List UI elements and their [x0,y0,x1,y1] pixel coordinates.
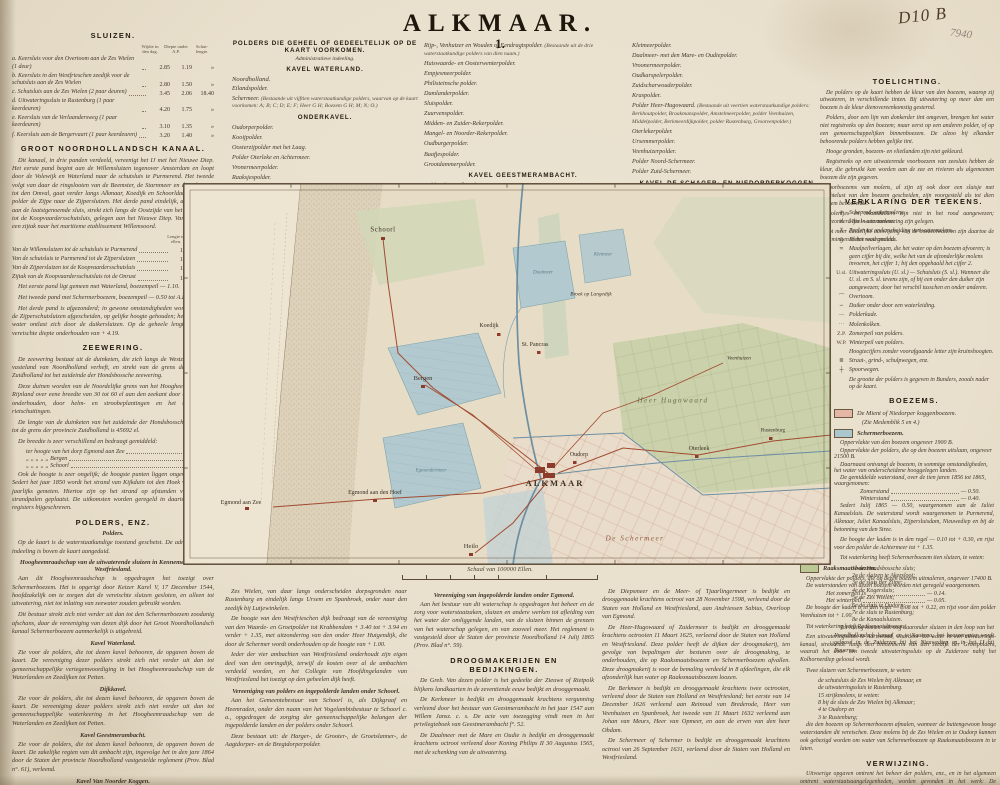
polder-list-item: Midden- en Zuider-Rekerpolder. [424,120,622,128]
raaks-peil-rows: Het zomerpeil is — 0.14. Het winterpeil … [800,591,996,604]
map-label-alkmaar: ALKMAAR [526,479,585,488]
legend-symbol-row: ≣ Straat-, grind-, schulpwegen, enz. [834,358,994,365]
legend-symbol-row: ⊼ Peelen tot onderscheiding van watermol… [834,228,994,235]
map-label-heerhugowaard: Heer Hugowaard [637,397,708,404]
legend-symbol-icon: — [834,312,849,319]
raaks-statistics: Oppervlakte der polders, die op dezen bo… [800,576,996,590]
raaksmaatsboezem-block: Raaksmaatsboezem. Oppervlakte der polder… [800,564,996,785]
map-sheet: ALKMAAR. 1. D10 B 7940 SLUIZEN. Wijdte i… [0,0,1000,785]
polder-list-item: Baafjespolder. [424,151,622,159]
legend-symbol-label: De grootte der polders is gegeven in Bun… [849,377,994,392]
koedijk-marker [497,333,501,336]
map-label-kleimeer: Kleimeer [594,253,612,258]
legend-symbol-label: Maalpeilverlagen, die het water op den b… [849,246,994,268]
bottom-paragraph: Aan het Gemeentebestuur van Schoorl is, … [225,697,407,730]
map-label-schermeer: De Schermeer [606,535,665,542]
sluizen-heading: SLUIZEN. [12,31,214,40]
legend-symbol-row: Hoogtecijfers zonder voorafgaande letter… [834,349,994,356]
map-label-daalmeer: Daalmeer [533,271,553,276]
map-label-schoorl: Schoorl [370,228,395,235]
raaks-list-line: 15 strijkmolens, te weten: [818,693,996,699]
legend-symbol-label: Zomerpeil van polders. [849,331,904,338]
boezems-heading: BOEZEMS. [834,396,994,405]
raaks-list-line: 8 bij de sluis de Zes Wielen bij Alkmaar… [818,700,996,706]
raaks-paragraph: Een uitwateringssluis te Aartswoud, waar… [800,634,996,665]
legend-symbol-label: Polderkade. [849,312,878,319]
legend-symbol-icon: ✕ [834,219,849,226]
sluis-row: f. Keersluis aan de Bergervaart (1 paar … [12,132,214,140]
legend-symbol-icon: W.P. [834,340,849,347]
map-label-egmondermeer: Egmondermeer [416,469,447,474]
raaks-paragraphs: De hoogte der kaden is in den regel — 0.… [800,605,996,675]
polder-list-item: Daalmeer- met den Mare- en Oudiepolder. [632,52,824,60]
bottom-paragraph: De hoogte van den Westfrieschen dijk bed… [225,615,407,648]
raaks-closing-paragraph: die den boezem op Schermerboezem afmalen… [800,722,996,753]
scale-bar-block: Schaal van 100000 Ellen. [388,566,612,580]
legend-symbol-icon: ✳ [834,210,849,217]
bottom-paragraph: Deze bestaan uit: de Harger-, de Grooter… [225,733,407,750]
map-label-egmond-zee: Egmond aan Zee [221,500,262,506]
boezem-entry-schermer: Schermerboezem. [834,429,994,438]
map-label-oterleek: Oterleek [689,446,710,452]
map-label-stpancras: St. Pancras [522,342,549,348]
bottom-paragraph: De Kerkmeer is bedijkt en drooggemaakt k… [414,696,594,729]
polder-list-item: Grootdammerpolder. [424,161,622,169]
boezem-label: Schermerboezem. [857,430,904,437]
legend-symbol-label: Peelen tot onderscheiding van watermolen… [849,228,954,235]
polders-section-subheading: Kavel Geestmerambacht. [12,732,214,739]
scale-caption: Schaal van 100000 Ellen. [388,566,612,573]
polder-list-item: Vroonermeerpolder. [632,62,824,70]
peil-row: Zomerstand — 0.50. [860,489,980,495]
zuid-alkmaar-polder-region [483,488,553,565]
teekens-heading: VERKLARING DER TEEKENS. [834,197,994,206]
polder-list: Rijp-, Venhuizer en Wouden of Eendragtsp… [424,42,622,168]
legend-symbol-icon: ≣ [834,358,849,365]
bottom-paragraph: De Heer-Hugowaard of Zuidermeer is bedij… [602,624,790,683]
polder-list: Kleimeerpolder. Daalmeer- met den Mare- … [632,42,824,176]
boezem-color-swatch-blue [834,429,853,438]
polder-list-item: Polder Heer-Hugowaard. (Bestaande uit ve… [632,102,824,126]
sluis-row: a. Keersluis voor den Overtoom aan de Ze… [12,56,214,71]
peil-row: Het zomerpeil is — 0.14. [826,591,946,597]
legend-symbol-row: ⌒ Overtoom. [834,294,994,301]
polder-list-item: Veenhuizerpolder. [632,148,824,156]
sluis-row: c. Schutsluis aan de Zes Wielen (2 paar … [12,89,214,97]
bottom-paragraph: Zes Wielen, van daar langs onderscheiden… [225,588,407,613]
raaks-paragraph: De hoogte der kaden is in den regel — 0.… [800,605,996,621]
raaks-stat-line: De waterstanden van dezen boezem worden … [800,583,996,589]
polder-list-item: Oudburgerpolder. [424,140,622,148]
legend-symbol-label: Overtoom. [849,294,874,301]
polders-section: Kavel Waterland. Zie voor de polders, di… [12,640,214,682]
legend-symbol-row: ⊙ Kleine watermolens. [834,237,994,244]
polders-section-paragraph: Zie voor de polders, die tot dezen kavel… [12,741,214,774]
boezem-entry-mient: De Mient of Niedorper koggenboezem. [834,409,994,418]
bottom-paragraph: De Daalmeer met de Mare en Oudie is bedi… [414,732,594,757]
raaks-lines: de schutsluis de Zes Wielen bij Alkmaar,… [800,678,996,721]
boezem-label: De Mient of Niedorper koggenboezem. [857,410,956,417]
peil-row: Het winterpeil — 0.05. [826,598,946,604]
legend-symbol-label: Molenkolken. [849,322,881,329]
boezem-paragraph: De hoogte der kaden is in den regel — 0.… [834,537,994,553]
polder-list-item: Kleimeerpolder. [632,42,824,50]
boezem-statistics: Oppervlakte van den boezem ongeveer 1900… [834,440,994,487]
legend-symbol-label: Hoogtecijfers zonder voorafgaande letter… [849,349,993,356]
legend-symbol-icon: ┼ [834,367,849,374]
legend-symbol-row: ┼ Spoorwegen. [834,367,994,374]
polder-list-item: Sluispolder. [424,100,622,108]
polder-list-item: Oterlekerpolder. [632,128,824,136]
toelichting-paragraph: De polders op de kaart hebben de kleur v… [820,90,994,114]
province-label: Noordholland. [232,76,418,83]
oterleek-marker [695,455,699,458]
polder-list-item: Polder Zuid-Schermeer. [632,168,824,176]
verwijzing-paragraph: Uitvoerige opgaven omtrent het beheer de… [800,771,996,785]
kanaal-heading: GROOT NOORDHOLLANDSCH KANAAL. [12,144,214,153]
polder-list-item: Schermeer. (Bestaande uit vijftien water… [232,95,418,111]
bottom-col3-paragraphs: De Diepsmeer en de Meer- of Tjaarlingerm… [602,588,790,762]
legend-symbol-row: Z.P. Zomerpeil van polders. [834,331,994,338]
legend-symbol-row: ✕ Vijzel-watermolens. [834,219,994,226]
legend-symbol-icon: ⌒ [834,294,849,301]
legend-symbol-icon: Z.P. [834,331,849,338]
boezem-stat-line: Oppervlakte der polders, die op den boez… [834,448,994,460]
polders-section-subheading: Kavel Waterland. [12,640,214,647]
legend-symbol-row: De grootte der polders is gegeven in Bun… [834,377,994,392]
polder-list-item: Damlanderpolder. [424,90,622,98]
polders-section-subheading: Kavel Van Noorder Koggen. [12,778,214,785]
toelichting-paragraph: Hooge gronden, boezem- en vlietlanden zi… [820,149,994,157]
toelichting-heading: TOELICHTING. [820,77,994,86]
boezem-stat-line: Oppervlakte van den boezem ongeveer 1900… [834,440,994,446]
verwijzing-heading: VERWIJZING. [800,759,996,768]
raaks-paragraph: Twee sluizen van Schermerboezem, te wete… [800,668,996,676]
polders-section-paragraph: Aan dit Hoogheemraadschap is opgedragen … [12,575,214,608]
teekens-list: ✳ Scheprad-watermolens. ✕ Vijzel-watermo… [834,210,994,392]
bottom-paragraph: De Diepsmeer en de Meer- of Tjaarlingerm… [602,588,790,621]
toelichting-paragraph: Polders, door een lijn van donkerder tin… [820,115,994,146]
map-label-veenhuizen: Veenhuizen [727,356,751,361]
sluis-row: e. Keersluis van de Verlaandersweg (1 pa… [12,115,214,130]
boezem-note: (Zie Medemblik 5 en 4.) [856,420,994,426]
legend-symbol-label: Scheprad-watermolens. [849,210,905,217]
kavel-waterland-heading: KAVEL WATERLAND. [232,66,418,73]
legend-symbol-icon: ∽ [834,303,849,310]
boezem-entry-raaks: Raaksmaatsboezem. [800,564,996,573]
bottom-column-3: De Diepsmeer en de Meer- of Tjaarlingerm… [602,588,790,765]
heilo-marker [469,553,473,556]
boezem-stat-line: De gemiddelde waterstand, over de tien j… [834,475,994,487]
droogmakerijen-heading: DROOGMAKERIJEN EN BEDIJKINGEN. [414,656,594,674]
polder-list-heading-line2: KAART VOORKOMEN. [232,47,418,54]
bottom-paragraph: De Greb. Van dezen polder is het gedeelt… [414,677,594,694]
raaks-list-line: 4 te Oudorp en [818,707,996,713]
sluis-row: d. Uitwateringssluis te Rustenburg (1 pa… [12,98,214,113]
polder-list-item: Zuidscharwouderpolder. [632,82,824,90]
map-canvas [183,183,831,565]
schoorl-marker [381,237,385,240]
legend-symbol-label: Straat-, grind-, schulpwegen, enz. [849,358,929,365]
polder-list-item: Vronermeerpolder. [232,164,418,172]
polder-list-item: Raaksjespolder. [232,174,418,182]
map-label-oudorp: Oudorp [570,452,588,458]
legend-symbol-row: U.sl. Uitwateringssluis (U. sl.) — Schut… [834,270,994,292]
polder-list-item: Zuurvenspolder. [424,110,622,118]
polder-list-item: Philisteinsche polder. [424,80,622,88]
raaks-list-line: 3 te Rustenburg; [818,715,996,721]
legend-symbol-row: ✳ Scheprad-watermolens. [834,210,994,217]
legend-symbol-icon: ≍ [834,246,849,268]
polders-section: Dijkkavel. Zie voor de polders, die tot … [12,686,214,728]
polder-list-item: Mangel- en Noorder-Rekerpolder. [424,130,622,138]
polders-section-paragraph: Zie voor de polders, die tot dezen kavel… [12,649,214,682]
polder-list-item: Rijp-, Venhuizer en Wouden of Eendragtsp… [424,42,622,58]
raaks-list-line: de schutsluis de Zes Wielen bij Alkmaar,… [818,678,996,684]
raaks-stat-line: Oppervlakte der polders, die op dezen bo… [800,576,996,582]
legend-symbol-icon: U.sl. [834,270,849,292]
polder-list-item: Eilandspolder. [232,85,418,93]
rustenburg-marker [769,437,773,440]
polder-list-item: Kooijpolder. [232,134,418,142]
legend-symbol-row: ≍ Maalpeilverlagen, die het water op den… [834,246,994,268]
polders-section: Kavel Geestmerambacht. Zie voor de polde… [12,732,214,774]
polder-list-heading-line1: POLDERS DIE GEHEEL OF GEDEELTELIJK OP DE [232,40,418,47]
polder-list-item: Huiswaarde- en Oosterwenterpolder. [424,60,622,68]
kavel-geestmerambacht-heading: KAVEL GEESTMERAMBACHT. [424,172,622,179]
polder-list-item: Empjesmeerpolder. [424,70,622,78]
polder-list-item: Ursemmerpolder. [632,138,824,146]
legend-symbol-label: Duiker onder door een waterleiding. [849,303,936,310]
alkmaar-town-block [535,467,545,473]
handwritten-inventory-mark: D10 B [897,3,948,28]
polders-section-paragraph: Zie voor de polders, die tot dezen kavel… [12,695,214,728]
legend-symbol-row: ⋯ Molenkolken. [834,322,994,329]
egmond-zee-marker [245,507,249,510]
alkmaar-map: Schoorl Koedijk Broek op Langedijk St. P… [183,183,831,565]
boezem-color-swatch-green [800,564,819,573]
bottom-col2-paragraphs: De Greb. Van dezen polder is het gedeelt… [414,677,594,757]
polders-section: Hoogheemraadschap van de uitwaterende sl… [12,559,214,636]
polder-list-item: Polder Noord-Schermeer. [632,158,824,166]
legend-symbol-label: Vijzel-watermolens. [849,219,896,226]
sheet-title-text: ALKMAAR. [300,10,700,38]
polder-list-subheading: Administratieve indeeling. [232,56,418,62]
legend-symbol-label: Kleine watermolens. [849,237,897,244]
polders-section-paragraph: Dit bestuur strekt zich niet verder uit … [12,611,214,636]
legend-symbol-label: Winterpeil van polders. [849,340,904,347]
map-label-egmond-hoef: Egmond aan den Hoef [348,490,402,496]
boezem-peil-rows: Zomerstand — 0.50. Winterstand — 0.40. [834,489,994,502]
sluizen-table: a. Keersluis voor den Overtoom aan de Ze… [12,56,214,139]
boezem-paragraph: Tot waterkering heeft Schermerboezem tie… [834,555,994,563]
polders-sections: Polders. Op de kaart is de waterstaatkun… [12,530,214,785]
egmond-vereeniging-subheading: Vereeniging van ingepolderde landen onde… [414,592,594,599]
polder-list-item: Oosterzijpolder met het Laag. [232,144,418,152]
bottom-paragraph: De Berkmeer is bedijkt en drooggemaakt k… [602,685,790,735]
legend-symbol-icon: ⋯ [834,322,849,329]
handwritten-pencil-number: 7940 [949,27,972,42]
legend-symbol-icon: ⊼ [834,228,849,235]
polder-list-item: Oudkarspelerpolder. [632,72,824,80]
legend-symbol-icon: ⊙ [834,237,849,244]
map-label-langedijk: Broek op Langedijk [570,292,612,297]
polders-section-subheading: Dijkkavel. [12,686,214,693]
map-label-koedijk: Koedijk [479,323,498,329]
boezem-paragraph: Sedert Julij 1865 — 0.50, waargenomen aa… [834,503,994,534]
egmond-hoef-marker [373,499,377,502]
polder-list: Eilandspolder. Schermeer. (Bestaande uit… [232,85,418,111]
toelichting-paragraph: Regtstreeks op een uitwaterende voorboez… [820,159,994,183]
polder-list-item: Kraspolder. [632,92,824,100]
bottom-paragraph: De Schermeer of Schermer is bedijkt en d… [602,737,790,762]
bottom-column-2: Vereeniging van ingepolderde landen onde… [414,588,594,760]
legend-symbol-icon [834,349,849,356]
legend-symbol-label: Uitwateringssluis (U. sl.) — Schutsluis … [849,270,994,292]
map-label-bergen: Bergen [414,376,433,383]
bottom-paragraph: Aan het bestuur van dit waterschap is op… [414,601,594,651]
oudorp-marker [573,461,577,464]
legend-symbol-row: W.P. Winterpeil van polders. [834,340,994,347]
raaks-paragraph: Tot waterkering heeft Raaksmaatsboezem: [800,624,996,632]
alkmaar-town-block [547,463,555,468]
peil-row: Winterstand — 0.40. [860,496,980,502]
boezem-paragraphs: Sedert Julij 1865 — 0.50, waargenomen aa… [834,503,994,563]
legend-symbol-row: — Polderkade. [834,312,994,319]
legend-symbol-icon [834,377,849,392]
bottom-col1-paragraphs: Zes Wielen, van daar langs onderscheiden… [225,588,407,685]
sluis-row: b. Keersluis in den Westfrieschen zeedij… [12,73,214,88]
polder-list-item: Polder Oterleke en Achtermeer. [232,154,418,162]
stpancras-marker [537,351,541,354]
onderkavel-heading: ONDERKAVEL. [232,114,418,121]
bottom-paragraph: Ieder der vier ambachten van Westfriesla… [225,651,407,684]
map-label-rustenburg: Rustenburg [761,428,785,433]
legend-symbol-label: Spoorwegen. [849,367,880,374]
map-label-heilo: Heilo [464,544,478,551]
bottom-col1-paragraphs-2: Aan het Gemeentebestuur van Schoorl is, … [225,697,407,750]
raaks-list-line: de uitwateringssluis te Rustenburg. [818,685,996,691]
scale-bar [402,574,598,580]
boezem-label: Raaksmaatsboezem. [823,565,876,572]
bergen-marker [421,385,425,388]
polder-list-item: Oudorperpolder. [232,124,418,132]
boezem-color-swatch-pink [834,409,853,418]
polders-section: Kavel Van Noorder Koggen. Met den Dijkgr… [12,778,214,785]
legend-symbol-row: ∽ Duiker onder door een waterleiding. [834,303,994,310]
boezem-stat-line: Daarnaast ontvangt de boezem, in sommige… [834,462,994,474]
bottom-column-1: Zes Wielen, van daar langs onderscheiden… [225,588,407,752]
schoorl-vereeniging-subheading: Vereeniging van polders en ingepolderde … [225,688,407,695]
sluizen-column-headers: Wijdte in den dag. Diepte onder A.P. Sch… [12,44,214,55]
